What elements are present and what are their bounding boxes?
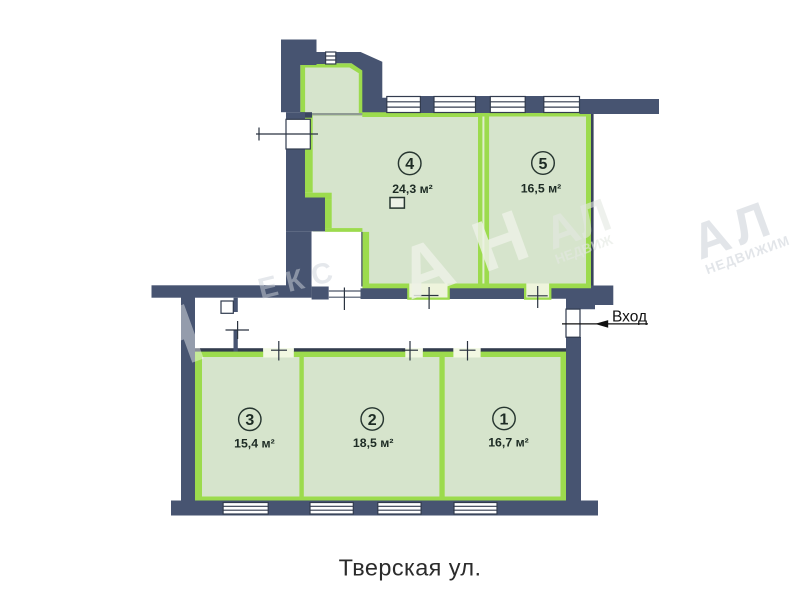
svg-text:3: 3 [245, 412, 254, 429]
svg-text:2: 2 [368, 412, 377, 429]
svg-text:15,4 м²: 15,4 м² [234, 437, 275, 451]
svg-text:24,3 м²: 24,3 м² [392, 182, 433, 196]
svg-text:4: 4 [405, 156, 414, 173]
svg-text:16,7 м²: 16,7 м² [488, 436, 529, 450]
svg-text:1: 1 [500, 411, 509, 428]
svg-text:5: 5 [539, 156, 548, 173]
svg-text:Вход: Вход [612, 309, 647, 326]
svg-text:18,5 м²: 18,5 м² [353, 436, 394, 450]
svg-text:Тверская ул.: Тверская ул. [339, 555, 482, 581]
